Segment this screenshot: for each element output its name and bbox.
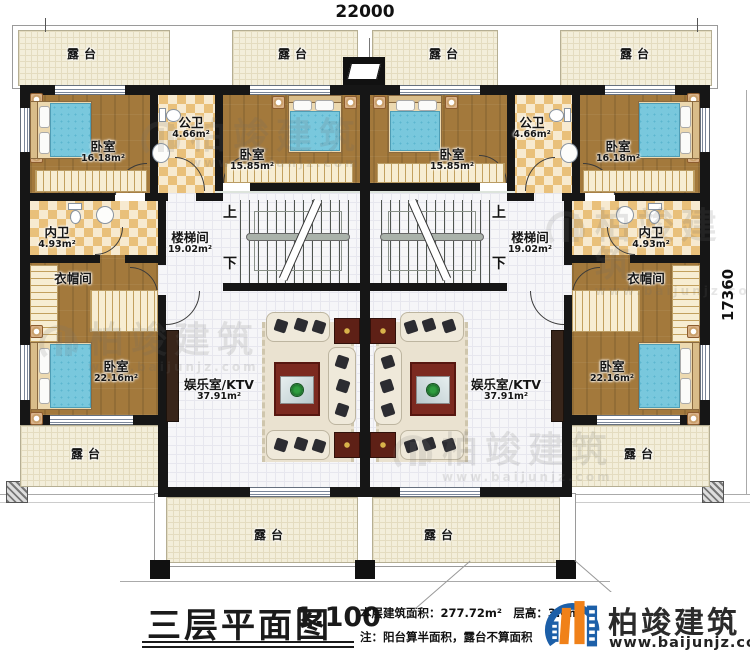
nightstand — [30, 412, 43, 425]
wall — [20, 255, 100, 263]
tv-console — [551, 330, 564, 422]
sofa-chaise — [374, 347, 402, 425]
wall — [564, 193, 572, 265]
dimension-width: 22000 — [335, 2, 394, 22]
pillow — [680, 378, 691, 404]
terrace-label: 露台 — [620, 48, 654, 62]
pillow — [293, 100, 312, 111]
flue-antenna-line — [369, 38, 370, 57]
wall — [20, 193, 115, 201]
nightstand — [687, 412, 700, 425]
cloakroom-rack — [572, 290, 640, 332]
cloakroom-rack — [90, 290, 158, 332]
sofa-chaise — [328, 347, 356, 425]
terrace-column — [355, 560, 375, 579]
room-label-bedroom: 卧室15.85m² — [230, 148, 274, 173]
nightstand — [687, 325, 700, 338]
room-label-private-bath: 内卫4.93m² — [632, 226, 670, 251]
stair-down-label: 下 — [492, 256, 506, 272]
dimension-height: 17360 — [708, 270, 748, 320]
sink — [96, 206, 114, 224]
pillow — [39, 348, 50, 374]
bed-mattress — [50, 344, 91, 408]
plant — [427, 384, 439, 396]
terrace-label: 露台 — [278, 48, 312, 62]
bed-mattress — [639, 103, 680, 157]
wall — [564, 295, 572, 420]
window — [400, 85, 480, 95]
unit-left — [20, 85, 365, 497]
wall — [615, 193, 710, 201]
room-label-bedroom: 卧室22.16m² — [94, 360, 138, 385]
wall — [572, 85, 580, 201]
sofa — [266, 430, 330, 460]
nightstand — [373, 96, 386, 109]
terrace-label: 露台 — [67, 48, 101, 62]
toilet — [564, 108, 571, 122]
window — [50, 415, 133, 425]
sink — [616, 206, 634, 224]
terrace-front-line — [120, 581, 610, 582]
window — [20, 345, 30, 400]
pillow — [39, 132, 50, 154]
window — [597, 415, 680, 425]
wall — [562, 420, 572, 497]
nightstand — [344, 96, 357, 109]
closet-rack — [35, 170, 147, 192]
toilet-bowl — [70, 210, 81, 224]
title-block: 三层平面图 1:100 本层建筑面积：277.72m² 层高：3.0m 注：阳台… — [0, 592, 750, 664]
toilet — [159, 108, 166, 122]
ceiling-light-tile — [370, 432, 396, 458]
wall — [196, 193, 223, 201]
wall — [370, 183, 480, 191]
nightstand — [445, 96, 458, 109]
room-label-bedroom: 卧室15.85m² — [430, 148, 474, 173]
room-label-ktv: 娱乐室/KTV37.91m² — [184, 378, 254, 403]
room-label-stairwell: 楼梯间19.02m² — [168, 231, 212, 256]
pillow — [396, 100, 415, 111]
pillow — [680, 106, 691, 128]
wall — [215, 85, 223, 191]
wall — [630, 255, 710, 263]
wall — [158, 295, 166, 420]
room-label-bedroom: 卧室16.18m² — [596, 140, 640, 165]
terrace-bottom-right — [372, 497, 560, 563]
bed-headboard — [692, 101, 700, 159]
room-label-ktv: 娱乐室/KTV37.91m² — [471, 378, 541, 403]
terrace-label: 露台 — [624, 448, 658, 462]
dimension-tick — [697, 18, 698, 32]
closet-rack — [583, 170, 695, 192]
stair-up-label: 上 — [492, 205, 506, 221]
wall — [223, 283, 360, 291]
room-label-bedroom: 卧室16.18m² — [81, 140, 125, 165]
terrace-label: 露台 — [429, 48, 463, 62]
tv-console — [166, 330, 179, 422]
sofa — [400, 430, 464, 460]
title-underline — [142, 641, 354, 648]
room-label-bedroom: 卧室22.16m² — [590, 360, 634, 385]
stair-up-label: 上 — [223, 205, 237, 221]
pillow — [680, 348, 691, 374]
sofa — [400, 312, 464, 342]
sink — [560, 143, 578, 163]
bed-headboard — [30, 101, 38, 159]
room-label-private-bath: 内卫4.93m² — [38, 226, 76, 251]
room-label-cloakroom: 衣帽间 — [54, 272, 92, 286]
terrace-label: 露台 — [424, 529, 458, 543]
measurement-note: 注：阳台算半面积，露台不算面积 — [360, 629, 533, 645]
room-label-stairwell: 楼梯间19.02m² — [508, 231, 552, 256]
window — [250, 85, 330, 95]
center-flue — [343, 57, 385, 88]
nightstand — [272, 96, 285, 109]
ceiling-light-tile — [334, 318, 360, 344]
room-label-cloakroom: 衣帽间 — [627, 272, 665, 286]
bed-mattress — [390, 111, 440, 151]
brand-url: www.baijunjz.com — [609, 635, 750, 651]
terrace-label: 露台 — [71, 448, 105, 462]
floor-plan-page: 22000 17360 柏竣建筑 www.baijunjz.com 柏竣建筑 w… — [0, 0, 750, 664]
sliding-door-window — [400, 487, 480, 497]
window — [700, 108, 710, 152]
window — [700, 345, 710, 400]
wall — [158, 193, 166, 265]
wall — [166, 487, 250, 497]
bed-headboard — [30, 342, 38, 410]
toilet-bowl — [649, 210, 660, 224]
pillow — [680, 132, 691, 154]
bed-mattress — [290, 111, 340, 151]
toilet — [68, 203, 82, 210]
plant — [291, 384, 303, 396]
wall — [572, 255, 605, 263]
terrace-column — [556, 560, 576, 579]
ceiling-light-tile — [334, 432, 360, 458]
wall — [370, 487, 400, 497]
pillow — [39, 106, 50, 128]
window — [20, 108, 30, 152]
wall — [370, 283, 507, 291]
terrace-column — [150, 560, 170, 579]
terrace-label: 露台 — [254, 529, 288, 543]
flue-vent — [347, 63, 381, 80]
bed-mattress — [639, 344, 680, 408]
toilet-bowl — [549, 109, 564, 122]
wall — [507, 193, 534, 201]
stair-down-label: 下 — [223, 256, 237, 272]
wall — [125, 255, 158, 263]
room-label-public-bath: 公卫4.66m² — [513, 116, 551, 141]
unit-right — [365, 85, 710, 497]
pillow — [315, 100, 334, 111]
window — [55, 85, 125, 95]
sink — [152, 143, 170, 163]
sofa — [266, 312, 330, 342]
bed-headboard — [692, 342, 700, 410]
brand-logo-icon — [537, 592, 605, 660]
wall — [250, 183, 360, 191]
window — [605, 85, 675, 95]
wall — [330, 487, 360, 497]
wall — [158, 420, 168, 497]
toilet — [648, 203, 662, 210]
dimension-tick — [45, 18, 46, 32]
pillow — [418, 100, 437, 111]
nightstand — [30, 325, 43, 338]
ceiling-light-tile — [370, 318, 396, 344]
pillow — [39, 378, 50, 404]
room-label-public-bath: 公卫4.66m² — [172, 116, 210, 141]
brand-block: 柏竣建筑 www.baijunjz.com — [537, 592, 750, 664]
wall — [480, 487, 564, 497]
sliding-door-window — [250, 487, 330, 497]
